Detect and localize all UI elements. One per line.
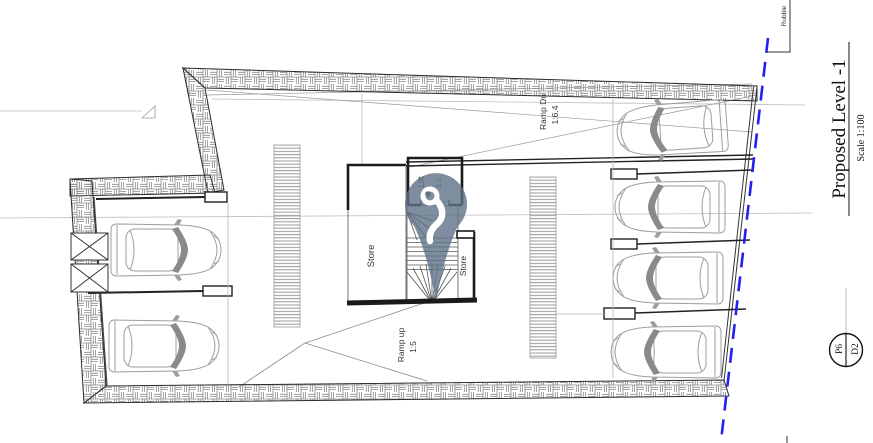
parking-stalls-left	[88, 192, 232, 386]
title-block: Proposed Level -1 Scale 1:100	[829, 42, 867, 216]
ramp-down-label: Ramp Dn	[538, 94, 548, 130]
drawing-title: Proposed Level -1	[829, 59, 850, 198]
store-small-label: Store	[458, 256, 468, 277]
drawing-scale: Scale 1:100	[856, 115, 867, 162]
sheet-ref-secondary: D2	[851, 343, 861, 355]
parked-car	[615, 176, 725, 238]
boundary-note-label: Rubble	[781, 5, 788, 26]
parked-car	[109, 315, 219, 377]
ramp-up-slope: 1:5	[408, 341, 418, 353]
store-main-label: Store	[366, 245, 377, 268]
floor-plan: Store Lift 1.5 Store Ramp Dn 1:6.4 Ramp …	[0, 0, 873, 443]
core	[347, 158, 477, 303]
parked-car	[611, 321, 721, 383]
floor-plan-canvas: Store Lift 1.5 Store Ramp Dn 1:6.4 Ramp …	[0, 0, 873, 443]
boundary-leader: Rubble	[766, 0, 790, 52]
ramp-up-label: Ramp up	[396, 327, 406, 362]
survey-triangle	[142, 106, 155, 118]
ramp-down-slope: 1:6.4	[550, 105, 560, 124]
sheet-ref-primary: P6	[835, 344, 845, 354]
store-room-walls	[348, 165, 406, 210]
parked-car	[111, 219, 221, 281]
parked-car	[613, 247, 723, 309]
sheet-ref-bubble: P6 D2	[830, 288, 863, 367]
